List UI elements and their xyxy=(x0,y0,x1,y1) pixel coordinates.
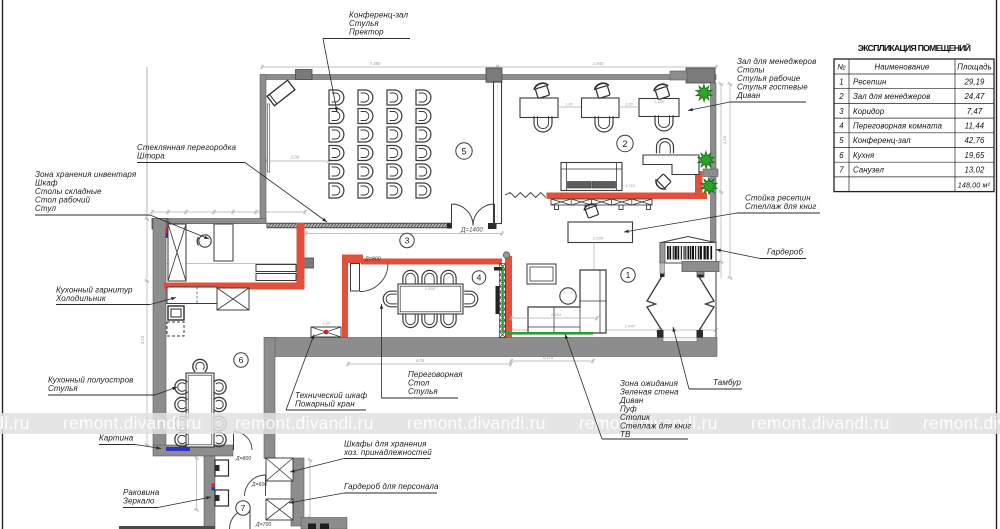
svg-text:5: 5 xyxy=(461,146,466,156)
svg-text:2: 2 xyxy=(622,139,627,149)
svg-text:Д=1400: Д=1400 xyxy=(460,228,483,234)
svg-text:2: 2 xyxy=(838,92,844,101)
svg-text:remont.divandi.ru: remont.divandi.ru xyxy=(923,413,1000,433)
svg-text:2,940: 2,940 xyxy=(592,61,605,66)
svg-text:ТВ: ТВ xyxy=(620,430,631,439)
svg-text:Стулья: Стулья xyxy=(48,384,78,393)
svg-text:19,65: 19,65 xyxy=(964,151,985,160)
svg-text:remont.divandi.ru: remont.divandi.ru xyxy=(0,413,30,433)
svg-text:7,480: 7,480 xyxy=(370,61,382,66)
svg-text:4: 4 xyxy=(477,273,482,283)
svg-text:Стеллаж для книг: Стеллаж для книг xyxy=(620,422,691,431)
svg-text:Д=800: Д=800 xyxy=(235,456,251,462)
svg-text:2,000: 2,000 xyxy=(592,236,604,241)
svg-text:148,00 м²: 148,00 м² xyxy=(958,180,991,189)
svg-text:24,47: 24,47 xyxy=(963,92,985,101)
svg-text:remont.divandi.ru: remont.divandi.ru xyxy=(751,413,890,433)
svg-text:Пожарный кран: Пожарный кран xyxy=(295,400,355,409)
svg-text:Пректор: Пректор xyxy=(349,28,384,37)
svg-text:13,02: 13,02 xyxy=(964,166,985,175)
svg-text:Штора: Штора xyxy=(137,152,165,161)
svg-text:4,15: 4,15 xyxy=(140,335,145,344)
svg-text:2,184: 2,184 xyxy=(550,312,562,317)
svg-text:Наименование: Наименование xyxy=(874,63,930,72)
svg-text:хоз. принадлежностей: хоз. принадлежностей xyxy=(343,448,432,457)
svg-text:6: 6 xyxy=(839,151,844,160)
svg-text:remont.divandi.ru: remont.divandi.ru xyxy=(407,413,546,433)
svg-text:1: 1 xyxy=(626,270,631,280)
svg-text:29,19: 29,19 xyxy=(963,77,985,86)
svg-text:Коридор: Коридор xyxy=(853,107,885,116)
svg-text:Гардероб для персонала: Гардероб для персонала xyxy=(344,482,439,491)
svg-text:1,447: 1,447 xyxy=(625,324,636,329)
svg-text:Д=800: Д=800 xyxy=(364,257,381,263)
svg-text:remont.divandi.ru: remont.divandi.ru xyxy=(235,413,374,433)
svg-text:Холодильник: Холодильник xyxy=(55,294,107,303)
svg-text:Площадь: Площадь xyxy=(957,63,992,72)
svg-text:1: 1 xyxy=(839,77,843,86)
svg-text:Тамбур: Тамбур xyxy=(713,378,741,387)
svg-text:Картина: Картина xyxy=(99,434,134,443)
svg-text:3: 3 xyxy=(405,236,410,246)
svg-text:4: 4 xyxy=(839,122,844,131)
svg-text:3: 3 xyxy=(839,107,844,116)
svg-text:ЭКСПЛИКАЦИЯ ПОМЕЩЕНИЙ: ЭКСПЛИКАЦИЯ ПОМЕЩЕНИЙ xyxy=(858,42,971,53)
svg-text:4,05: 4,05 xyxy=(416,358,425,363)
svg-text:7: 7 xyxy=(241,503,246,513)
svg-text:Диван: Диван xyxy=(736,91,761,100)
svg-text:7: 7 xyxy=(839,166,844,175)
svg-text:№: № xyxy=(837,63,846,72)
svg-text:42,76: 42,76 xyxy=(964,136,985,145)
svg-text:1,00: 1,00 xyxy=(565,103,574,107)
svg-text:2,08: 2,08 xyxy=(290,155,300,160)
svg-text:Стул: Стул xyxy=(35,204,56,213)
svg-text:Кухня: Кухня xyxy=(853,151,875,160)
svg-text:Зеркало: Зеркало xyxy=(123,497,155,506)
svg-text:Д=700: Д=700 xyxy=(255,522,271,528)
svg-text:7,47: 7,47 xyxy=(967,107,983,116)
svg-text:4,710: 4,710 xyxy=(625,184,636,188)
svg-text:1,800: 1,800 xyxy=(425,286,436,291)
svg-text:Конференц-зал: Конференц-зал xyxy=(853,136,911,145)
svg-text:Стулья: Стулья xyxy=(408,387,438,396)
svg-text:Д=600: Д=600 xyxy=(251,482,267,488)
svg-text:1,00: 1,00 xyxy=(625,103,634,107)
svg-text:Санузел: Санузел xyxy=(853,166,884,175)
svg-text:Ресепшн: Ресепшн xyxy=(853,77,887,86)
svg-text:Переговорная комната: Переговорная комната xyxy=(853,122,943,131)
svg-text:Гардероб: Гардероб xyxy=(767,248,803,257)
svg-text:Стеллаж для книг: Стеллаж для книг xyxy=(745,202,816,211)
svg-text:1,485: 1,485 xyxy=(654,100,665,104)
svg-text:Зал для менеджеров: Зал для менеджеров xyxy=(853,92,930,101)
svg-text:6: 6 xyxy=(239,355,244,365)
svg-text:11,44: 11,44 xyxy=(965,122,985,131)
svg-text:remont.divandi.ru: remont.divandi.ru xyxy=(63,413,202,433)
svg-text:5: 5 xyxy=(839,136,844,145)
svg-text:1,00: 1,00 xyxy=(322,322,331,326)
svg-text:2,18: 2,18 xyxy=(722,135,727,145)
